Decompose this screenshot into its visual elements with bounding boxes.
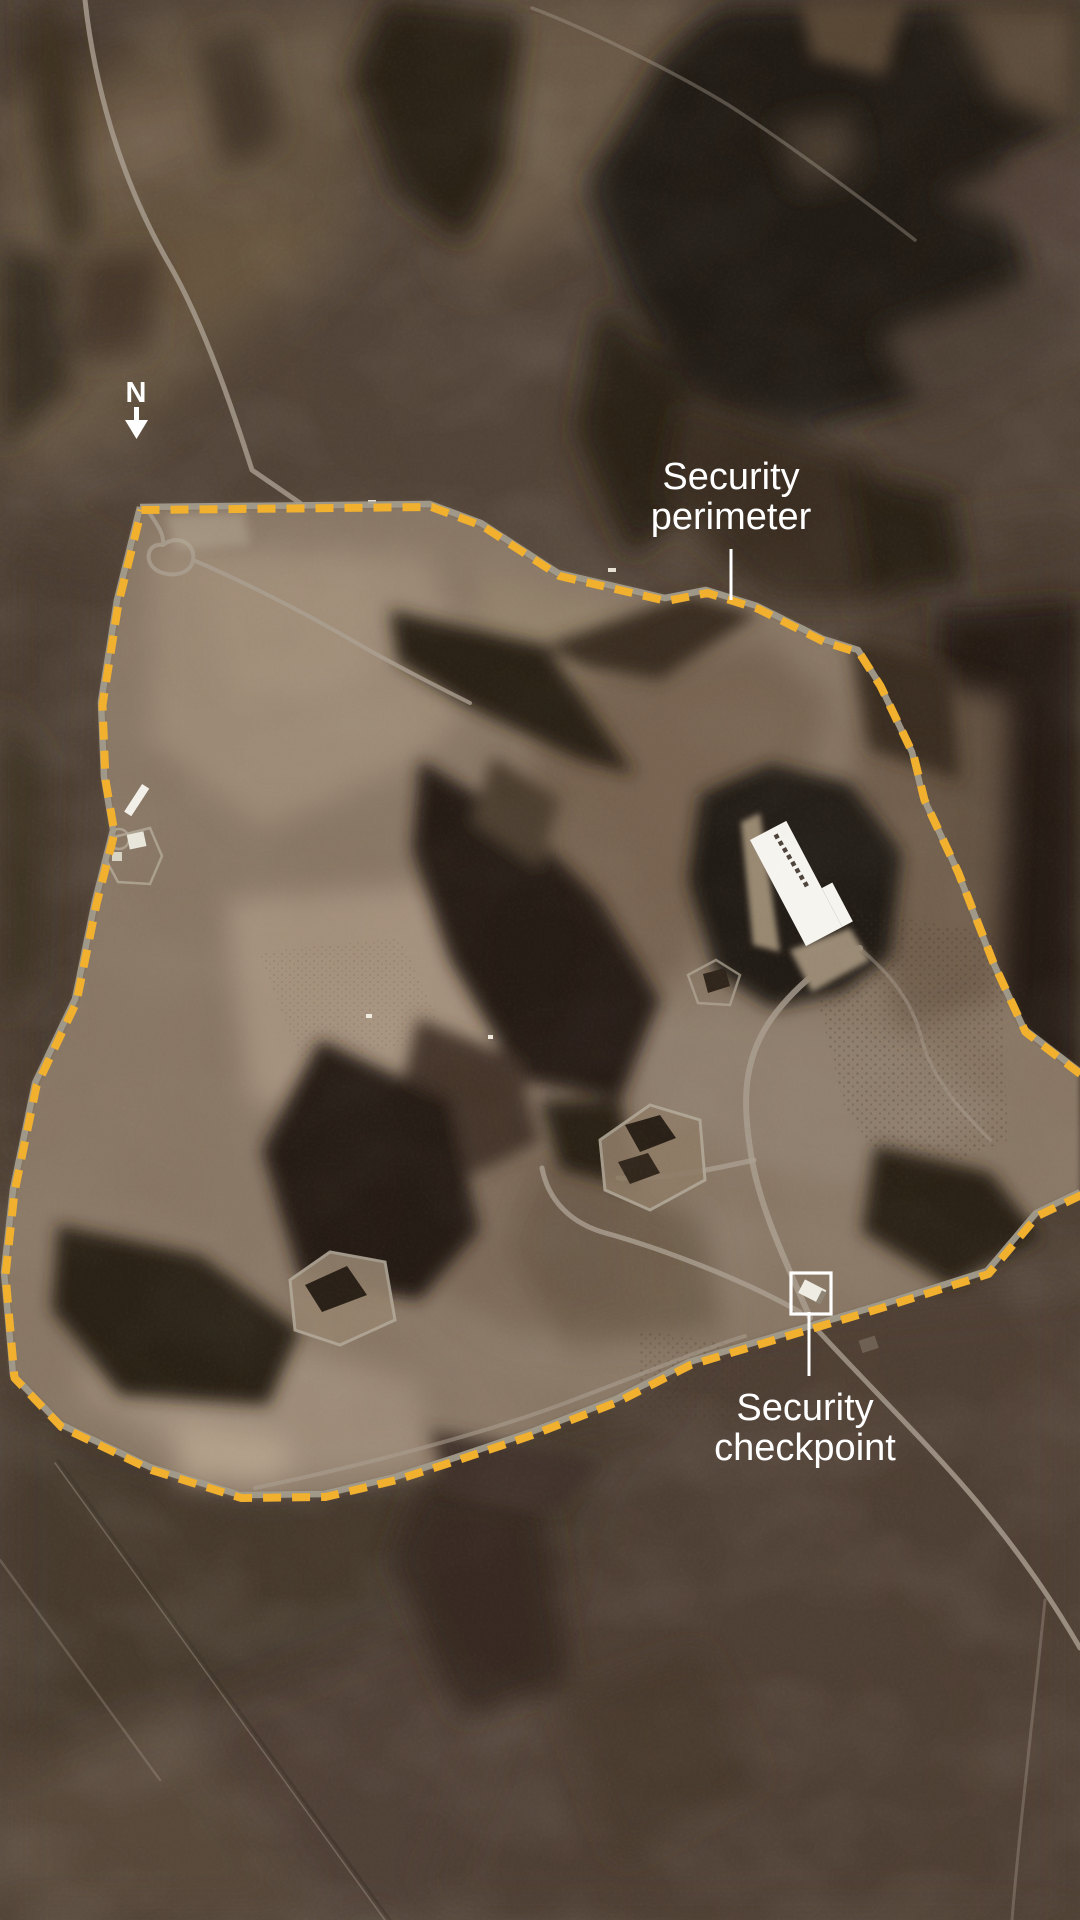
svg-text:checkpoint: checkpoint	[714, 1427, 896, 1469]
svg-text:Security: Security	[736, 1387, 873, 1429]
svg-text:N: N	[126, 377, 147, 409]
svg-text:Security: Security	[662, 456, 799, 498]
svg-text:perimeter: perimeter	[651, 496, 812, 538]
